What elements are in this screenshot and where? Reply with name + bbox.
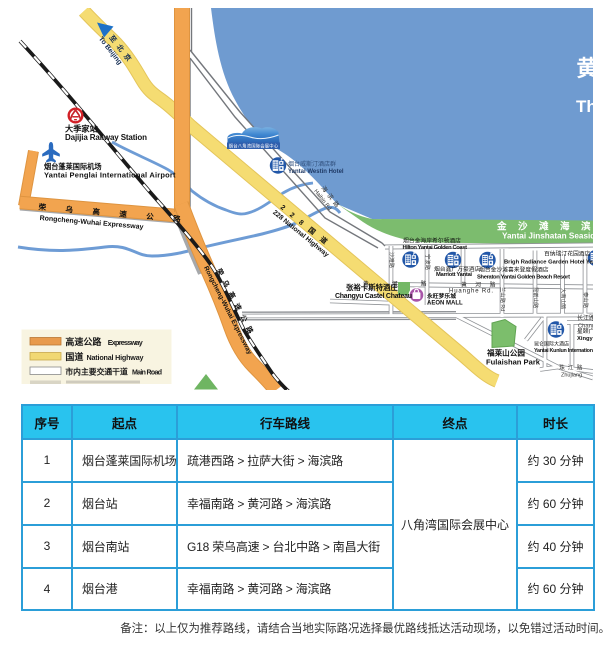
svg-text:烟台八角湾国际会展中心: 烟台八角湾国际会展中心 xyxy=(229,143,279,150)
svg-text:Huanghe Rd.: Huanghe Rd. xyxy=(449,289,493,295)
svg-text:黄海: 黄海 xyxy=(577,56,615,81)
svg-text:珠江路: 珠江路 xyxy=(559,364,585,372)
svg-text:Dajijia Railway Station: Dajijia Railway Station xyxy=(65,133,147,142)
svg-text:长江路: 长江路 xyxy=(577,314,595,322)
svg-text:Sheraton Yantai Golden Beach R: Sheraton Yantai Golden Beach Resort xyxy=(477,274,570,280)
svg-text:Xingyi: Xingyi xyxy=(577,336,595,342)
svg-text:昆嵛山路: 昆嵛山路 xyxy=(532,287,540,309)
svg-text:Zhujiang: Zhujiang xyxy=(561,373,582,379)
svg-text:昆仑国际大酒店: 昆仑国际大酒店 xyxy=(534,341,569,348)
svg-text:国道: 国道 xyxy=(65,351,83,362)
svg-text:Brigh Radiance Garden Hotel Ya: Brigh Radiance Garden Hotel Yantai xyxy=(504,260,603,266)
svg-text:Fulaishan Park: Fulaishan Park xyxy=(486,358,541,367)
svg-text:Chang: Chang xyxy=(578,324,595,330)
svg-text:Yantai Jinshatan Seaside Park: Yantai Jinshatan Seaside Park xyxy=(502,232,615,241)
svg-text:Yantai Penglai International A: Yantai Penglai International Airport xyxy=(44,171,176,180)
svg-text:烟台威斯汀酒店群: 烟台威斯汀酒店群 xyxy=(288,160,336,168)
svg-text:Main Road: Main Road xyxy=(132,369,162,376)
svg-text:兰山路 Rd: 兰山路 Rd xyxy=(499,287,507,311)
svg-text:Yantai Westin Hotel: Yantai Westin Hotel xyxy=(288,169,344,175)
svg-text:大南山路: 大南山路 xyxy=(560,288,568,310)
svg-text:百纳瑞汀花园酒店: 百纳瑞汀花园酒店 xyxy=(544,250,591,258)
svg-text:高速公路: 高速公路 xyxy=(65,336,102,347)
svg-text:福莱山公园: 福莱山公园 xyxy=(486,348,525,358)
svg-text:沙滩路: 沙滩路 xyxy=(388,252,396,269)
svg-text:National Highway: National Highway xyxy=(87,353,144,362)
svg-text:大季家站: 大季家站 xyxy=(65,124,99,134)
svg-text:AEON MALL: AEON MALL xyxy=(427,300,463,306)
svg-text:The Yellow Sea: The Yellow Sea xyxy=(576,97,615,116)
svg-text:泰山路: 泰山路 xyxy=(582,292,590,309)
svg-text:宁波路: 宁波路 xyxy=(424,254,432,271)
svg-text:烟台金海岸希尔顿酒店: 烟台金海岸希尔顿酒店 xyxy=(403,237,461,245)
svg-text:黄河路: 黄河路 xyxy=(363,280,449,288)
svg-text:Yantai Kunlun Internation: Yantai Kunlun Internation xyxy=(534,348,593,354)
svg-text:Marriott Yantai: Marriott Yantai xyxy=(436,272,472,278)
svg-text:烟台金沙滩喜来登度假酒店: 烟台金沙滩喜来登度假酒店 xyxy=(479,266,549,274)
svg-text:Changyu Castel Chateau: Changyu Castel Chateau xyxy=(335,293,412,300)
svg-text:市内主要交通干道: 市内主要交通干道 xyxy=(65,366,128,376)
svg-text:Hilton Yantai Golden Coast: Hilton Yantai Golden Coast xyxy=(403,245,468,251)
svg-text:黄河路: 黄河路 xyxy=(461,281,504,289)
svg-text:Expressway: Expressway xyxy=(108,338,143,347)
